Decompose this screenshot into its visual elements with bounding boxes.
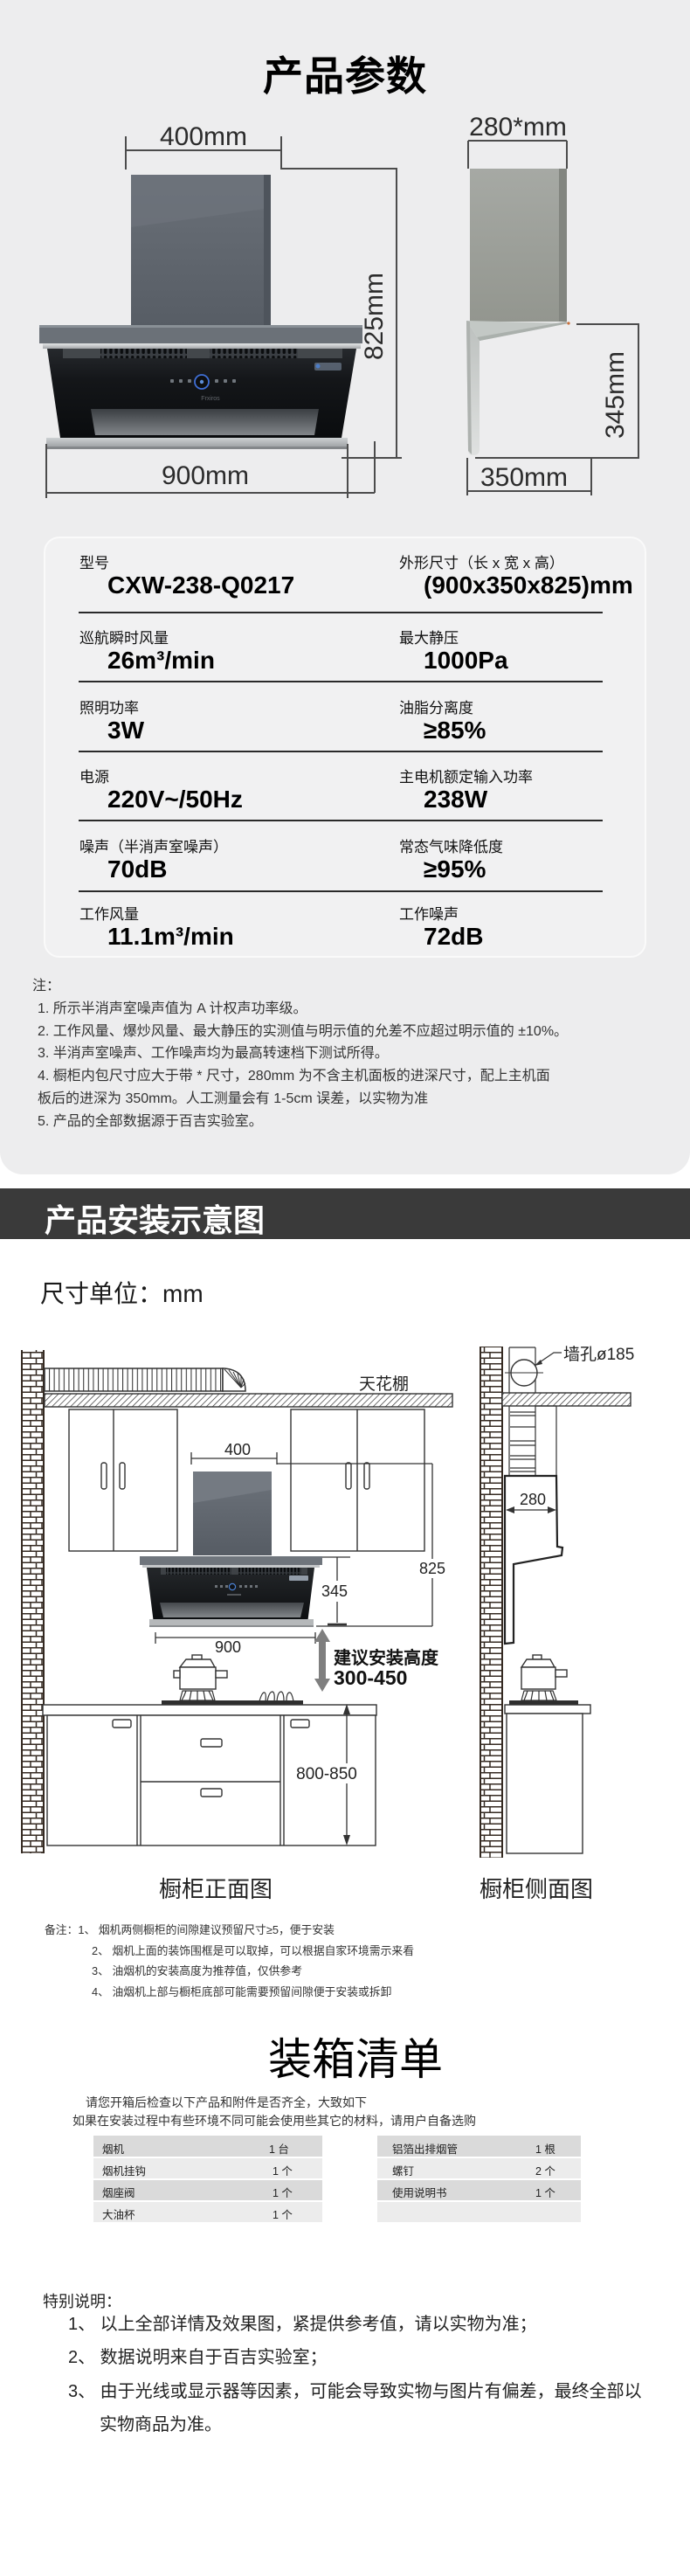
svg-text:400mm: 400mm: [160, 122, 247, 151]
svg-text:825: 825: [419, 1560, 445, 1577]
svg-text:Frxiros: Frxiros: [201, 396, 220, 402]
svg-text:350mm: 350mm: [480, 463, 568, 492]
svg-text:天花棚: 天花棚: [359, 1375, 409, 1394]
svg-text:280: 280: [520, 1491, 546, 1508]
svg-text:300-450: 300-450: [334, 1666, 407, 1689]
svg-text:345mm: 345mm: [601, 351, 630, 439]
svg-text:900mm: 900mm: [162, 461, 249, 490]
svg-text:900: 900: [215, 1638, 241, 1656]
svg-text:墙孔ø185: 墙孔ø185: [563, 1345, 634, 1364]
svg-text:400: 400: [224, 1441, 251, 1458]
svg-text:建议安装高度: 建议安装高度: [334, 1647, 439, 1668]
svg-text:800-850: 800-850: [296, 1765, 357, 1783]
svg-text:825mm: 825mm: [360, 273, 389, 360]
svg-text:280*mm: 280*mm: [469, 113, 567, 142]
svg-text:345: 345: [321, 1582, 348, 1600]
